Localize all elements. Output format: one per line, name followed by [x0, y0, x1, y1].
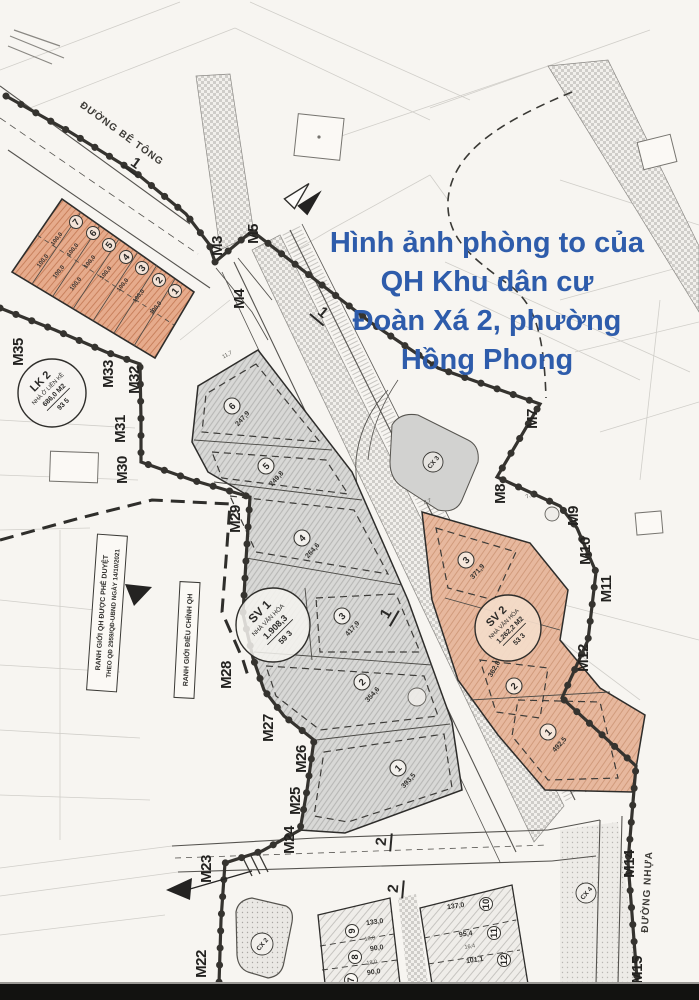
road-point-badge — [545, 507, 559, 521]
marker-m23: M23 — [198, 855, 215, 883]
marker-m32: M32 — [126, 366, 143, 394]
marker-m28: M28 — [218, 661, 235, 689]
marker-m8: M8 — [492, 484, 509, 504]
marker-m15: M15 — [629, 956, 646, 984]
marker-m7: M7 — [524, 409, 541, 429]
marker-m24: M24 — [281, 825, 298, 854]
lot-number: 9 — [347, 928, 358, 933]
marker-m14: M14 — [621, 849, 638, 878]
title-line-1: Hình ảnh phòng to của — [330, 227, 645, 259]
lot-number: 7 — [346, 977, 357, 982]
marker-m10: M10 — [577, 537, 594, 565]
marker-m25: M25 — [287, 787, 304, 815]
title-line-2: QH Khu dân cư — [381, 266, 594, 298]
marker-m3: M3 — [209, 236, 226, 256]
marker-m11: M11 — [598, 575, 615, 602]
marker-m33: M33 — [100, 360, 117, 388]
title-line-4: Hồng Phong — [401, 344, 573, 376]
badge-sv1: SV 1 NHÀ VĂN HÓA 1.908,3 59 3 — [236, 588, 310, 662]
road-number: 2 — [373, 837, 391, 847]
building-outline — [635, 511, 663, 535]
marker-m35: M35 — [10, 338, 27, 366]
lot-number: 12 — [499, 955, 510, 966]
scan-edge-bar — [0, 984, 699, 1000]
marker-m30: M30 — [114, 456, 131, 484]
lot-number: 8 — [350, 954, 361, 959]
marker-m29: M29 — [227, 505, 244, 533]
badge-cx2: CX 2 — [251, 933, 273, 955]
badge-cx4: CX 4 — [576, 883, 596, 903]
badge-lk2: LK 2 NHÀ Ở LIỀN KỀ 686,0 M2 93 5 — [18, 359, 86, 427]
badge-sv2: SV 2 NHÀ VĂN HÓA 1.262,2 M2 53 3 — [475, 595, 541, 661]
scanned-planning-map: M3 M4 M5 M7 M8 M9 M10 M11 M12 M14 M15 M2… — [0, 0, 699, 1000]
marker-m27: M27 — [260, 714, 277, 742]
marker-m12: M12 — [575, 644, 592, 672]
lot-number: 11 — [489, 927, 500, 938]
marker-m5: M5 — [245, 224, 262, 244]
lot-number: 10 — [481, 899, 492, 910]
marker-m22: M22 — [193, 950, 210, 978]
road-point-badge — [408, 688, 426, 706]
badge-cx3: CX 3 — [423, 452, 443, 472]
scan-edge-shadow — [0, 982, 699, 984]
road-number: 2 — [385, 884, 403, 894]
marker-m9: M9 — [565, 506, 582, 526]
building-outline — [49, 451, 98, 483]
marker-m26: M26 — [293, 745, 310, 773]
map-canvas: M3 M4 M5 M7 M8 M9 M10 M11 M12 M14 M15 M2… — [0, 0, 699, 1000]
title-line-3: Đoàn Xá 2, phường — [353, 305, 622, 337]
marker-m31: M31 — [112, 415, 129, 443]
marker-m4: M4 — [231, 288, 248, 309]
